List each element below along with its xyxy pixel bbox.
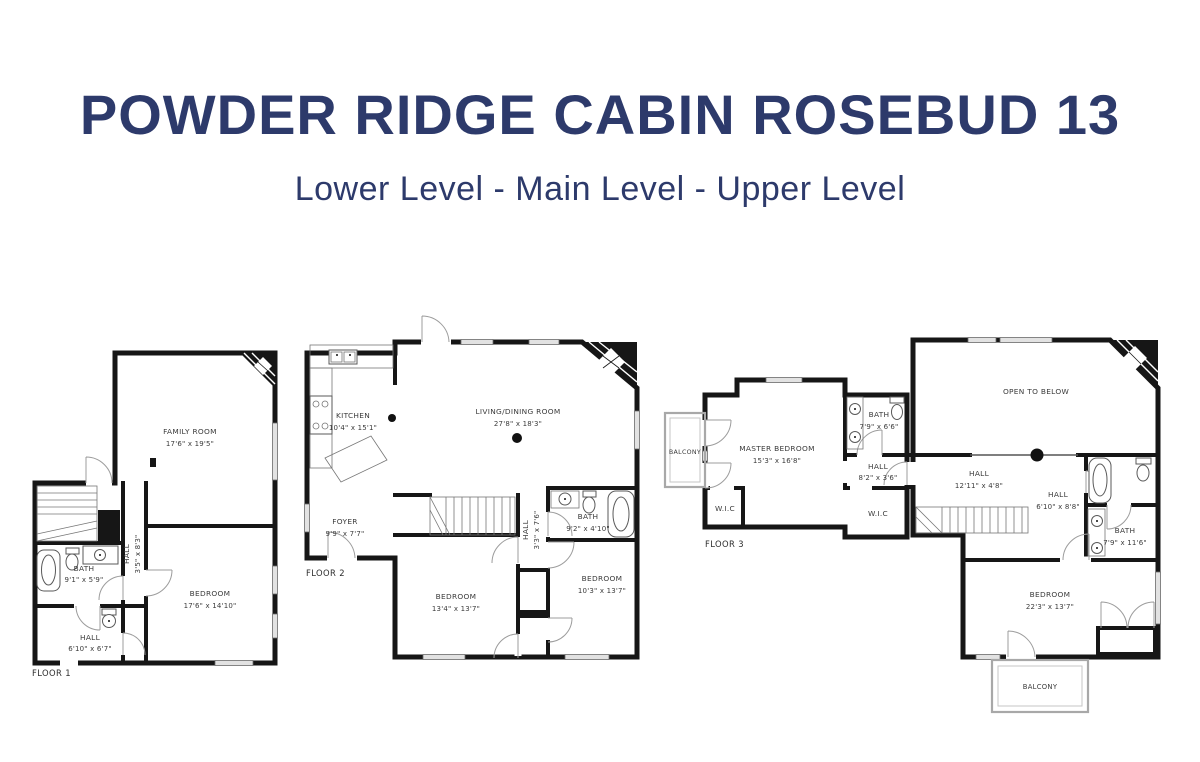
- room-label-bedroom-left: BEDROOM: [436, 592, 477, 601]
- floor2-stairs: [430, 497, 515, 535]
- floor-plan-1: FAMILY ROOM 17'6" x 19'5" HALL 3'5" x 8'…: [28, 338, 293, 686]
- room-label-wic-right: W.I.C: [868, 509, 888, 518]
- floor1-walls: [35, 353, 275, 663]
- floor1-room-labels: FAMILY ROOM 17'6" x 19'5" HALL 3'5" x 8'…: [32, 427, 236, 678]
- room-label-hall-main: HALL: [969, 469, 990, 478]
- floor-plan-3: BALCONY MASTER BEDROOM 15'3" x 16'8" BAT…: [658, 325, 1163, 725]
- room-label-hall2: HALL: [521, 519, 530, 540]
- room-label-bedroom3: BEDROOM: [1030, 590, 1071, 599]
- floor2-kitchen-light-dot: [388, 414, 396, 422]
- floor-plan-flyer: POWDER RIDGE CABIN ROSEBUD 13 Lower Leve…: [0, 0, 1200, 762]
- room-dims-bedroom3: 22'3" x 13'7": [1026, 603, 1074, 611]
- room-dims-hall2: 3'3" x 7'6": [533, 511, 541, 550]
- room-dims-living: 27'8" x 18'3": [494, 420, 542, 428]
- room-dims-foyer: 9'9" x 7'7": [326, 530, 365, 538]
- room-label-hall-upper: HALL: [122, 543, 131, 564]
- floor1-post: [150, 458, 156, 467]
- room-label-living: LIVING/DINING ROOM: [475, 407, 560, 416]
- room-dims-bath2: 9'2" x 4'10": [566, 525, 610, 533]
- room-label-kitchen: KITCHEN: [336, 411, 370, 420]
- room-label-hall-lower: HALL: [80, 633, 101, 642]
- room-dims-family: 17'6" x 19'5": [166, 440, 214, 448]
- floor1-label: FLOOR 1: [32, 668, 71, 678]
- room-dims-kitchen: 10'4" x 15'1": [329, 424, 377, 432]
- room-label-wic-left: W.I.C: [715, 504, 735, 513]
- room-dims-bedroom: 17'6" x 14'10": [184, 602, 237, 610]
- page-subtitle: Lower Level - Main Level - Upper Level: [0, 170, 1200, 209]
- floor1-stairs: [37, 486, 97, 541]
- room-dims-bedroom-right: 10'3" x 13'7": [578, 587, 626, 595]
- room-label-balcony-lower: BALCONY: [1023, 683, 1058, 691]
- room-label-bath-main: BATH: [1115, 526, 1136, 535]
- room-label-foyer: FOYER: [332, 517, 357, 526]
- room-label-open-below: OPEN TO BELOW: [1003, 387, 1070, 396]
- floor2-label: FLOOR 2: [306, 568, 345, 578]
- floor3-light-dot: [1031, 449, 1044, 462]
- room-label-balcony-upper: BALCONY: [669, 449, 701, 456]
- floor3-railing: [970, 449, 1078, 462]
- room-dims-master: 15'3" x 16'8": [753, 457, 801, 465]
- room-label-bedroom: BEDROOM: [190, 589, 231, 598]
- floor2-living-light-dot: [512, 433, 522, 443]
- room-dims-bath-main: 7'9" x 11'6": [1103, 539, 1147, 547]
- floor2-room-labels: KITCHEN 10'4" x 15'1" LIVING/DINING ROOM…: [306, 407, 626, 613]
- page-title: POWDER RIDGE CABIN ROSEBUD 13: [0, 82, 1200, 147]
- room-dims-master-hall: 8'2" x 3'6": [859, 474, 898, 482]
- room-dims-bedroom-left: 13'4" x 13'7": [432, 605, 480, 613]
- room-dims-hall-lower: 6'10" x 6'7": [68, 645, 112, 653]
- floor-plan-2: KITCHEN 10'4" x 15'1" LIVING/DINING ROOM…: [303, 308, 643, 670]
- floor1-windows: [215, 423, 278, 666]
- room-label-hall-lower3: HALL: [1048, 490, 1069, 499]
- room-dims-hall-upper: 3'5" x 8'3": [134, 535, 142, 574]
- room-label-master: MASTER BEDROOM: [739, 444, 815, 453]
- room-label-bath: BATH: [74, 564, 95, 573]
- room-dims-hall-main: 12'11" x 4'8": [955, 482, 1003, 490]
- floor3-stairs: [916, 507, 1028, 533]
- floor2-fixtures: [310, 345, 634, 537]
- floor3-label: FLOOR 3: [705, 539, 744, 549]
- room-label-bath2: BATH: [578, 512, 599, 521]
- room-label-bedroom-right: BEDROOM: [582, 574, 623, 583]
- room-label-family: FAMILY ROOM: [163, 427, 217, 436]
- room-dims-bath: 9'1" x 5'9": [65, 576, 104, 584]
- floor1-fireplace-icon: [240, 353, 275, 388]
- room-label-master-hall: HALL: [868, 462, 889, 471]
- room-label-master-bath: BATH: [869, 410, 890, 419]
- room-dims-master-bath: 7'9" x 6'6": [860, 423, 899, 431]
- room-dims-hall-lower3: 6'10" x 8'8": [1036, 503, 1080, 511]
